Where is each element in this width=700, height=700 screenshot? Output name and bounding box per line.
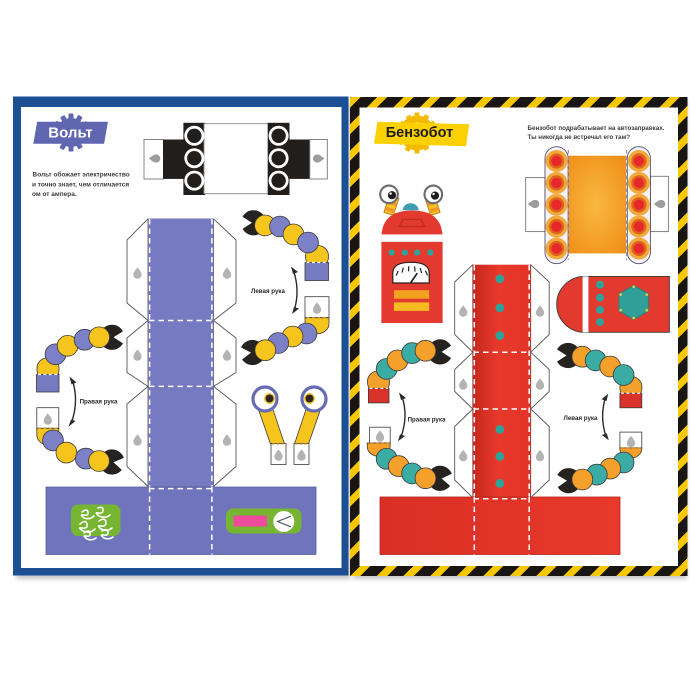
svg-text:ом от ампера.: ом от ампера. [32,191,77,198]
svg-text:Левая рука: Левая рука [564,415,599,422]
svg-text:Правая рука: Правая рука [80,399,118,406]
svg-text:и точно знает, чем отличается: и точно знает, чем отличается [32,181,129,188]
svg-text:Вольт обожает электричество: Вольт обожает электричество [33,171,130,179]
svg-text:Правая рука: Правая рука [408,416,446,423]
svg-text:Левая рука: Левая рука [251,288,286,295]
svg-text:Бензобот: Бензобот [386,125,454,141]
svg-text:Ты никогда не встречал его там: Ты никогда не встречал его там? [528,134,631,141]
svg-text:Бензобот подрабатывает на авто: Бензобот подрабатывает на автозаправках. [528,125,665,132]
svg-text:Вольт: Вольт [48,125,92,142]
